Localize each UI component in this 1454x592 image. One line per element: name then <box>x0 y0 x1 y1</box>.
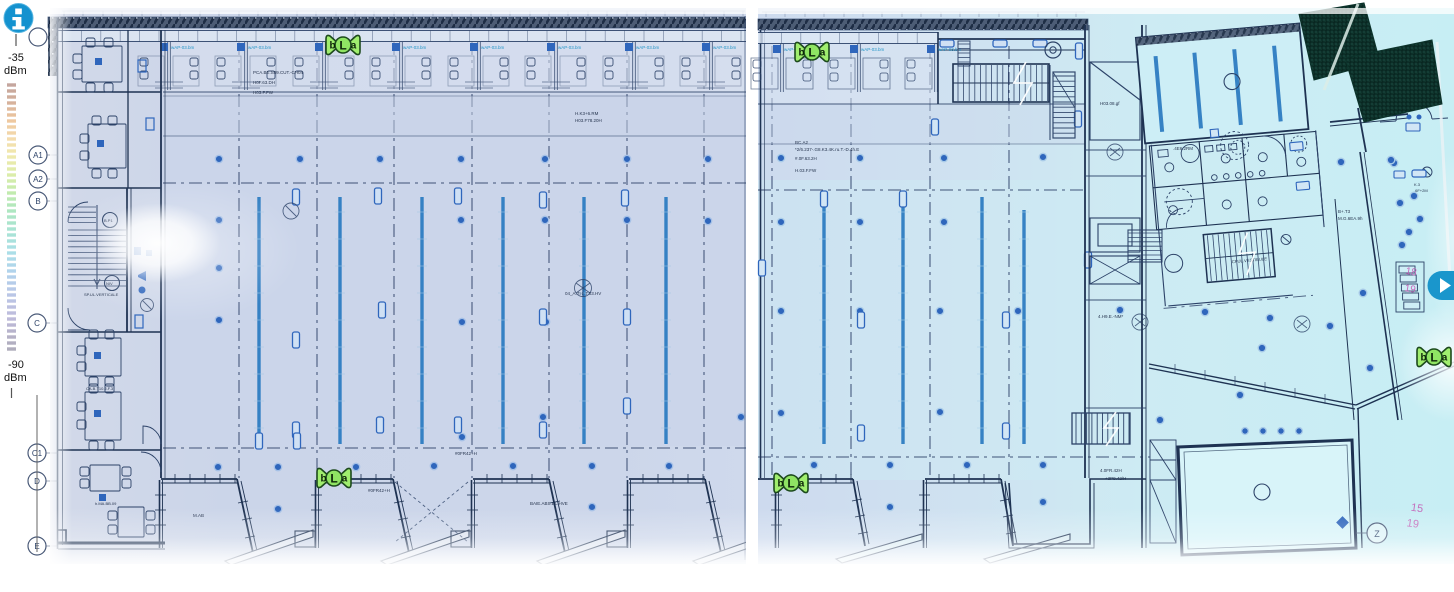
svg-text:C: C <box>34 319 40 328</box>
svg-text:wAP-03.bm: wAP-03.bm <box>248 45 272 50</box>
svg-text:H0F.63.DH: H0F.63.DH <box>253 80 275 85</box>
svg-text:M.G.6EA.9h: M.G.6EA.9h <box>1338 216 1363 221</box>
svg-text:a: a <box>820 48 826 59</box>
svg-text:wAP-03.bm: wAP-03.bm <box>481 45 505 50</box>
svg-text:B: B <box>35 197 40 206</box>
svg-text:wAP-03.bm: wAP-03.bm <box>713 45 737 50</box>
svg-text:B+.T3: B+.T3 <box>1338 209 1351 214</box>
svg-text:wAP-03.bm: wAP-03.bm <box>558 45 582 50</box>
svg-text:a: a <box>1442 353 1448 364</box>
svg-text:L: L <box>1430 351 1437 365</box>
svg-text:BC.A2: BC.A2 <box>795 140 809 145</box>
svg-text:wAP-03.bm: wAP-03.bm <box>636 45 660 50</box>
svg-text:#.0F.63.2H: #.0F.63.2H <box>795 156 817 161</box>
svg-text:a: a <box>799 479 805 490</box>
svg-text:wAP-03.bm: wAP-03.bm <box>861 47 885 52</box>
svg-text:wAP-03.bm: wAP-03.bm <box>171 45 195 50</box>
svg-text:b: b <box>777 479 783 490</box>
svg-text:dBm: dBm <box>4 65 27 77</box>
svg-text:H03.08.gf: H03.08.gf <box>1100 101 1120 106</box>
svg-text:A2: A2 <box>33 175 43 184</box>
svg-text:H03.F.FW: H03.F.FW <box>253 90 274 95</box>
svg-text:L: L <box>787 477 794 491</box>
svg-text:K.3: K.3 <box>1414 182 1421 187</box>
svg-text:L: L <box>808 46 815 60</box>
svg-text:wAP-03.bm: wAP-03.bm <box>403 45 427 50</box>
svg-text:*2/6.237-.G8.K3.4K.ru.T.-D.4h.: *2/6.237-.G8.K3.4K.ru.T.-D.4h.E <box>795 147 859 152</box>
svg-text:PCA.BE.S09.CUT.-CH04: PCA.BE.S09.CUT.-CH04 <box>253 70 304 75</box>
svg-text:b: b <box>798 48 804 59</box>
svg-text:4.H9.E.-NM*: 4.H9.E.-NM* <box>1098 314 1124 319</box>
svg-text:b: b <box>329 41 335 52</box>
svg-text:b: b <box>1420 353 1426 364</box>
svg-text:.4E6.2RM: .4E6.2RM <box>1173 146 1193 151</box>
svg-text:-35: -35 <box>8 52 24 64</box>
svg-text:H03.F78.20H: H03.F78.20H <box>575 118 602 123</box>
svg-text:a: a <box>351 41 357 52</box>
svg-text:b: b <box>320 474 326 485</box>
svg-text:dBm: dBm <box>4 372 27 384</box>
svg-text:-90: -90 <box>8 359 24 371</box>
svg-text:H.K3+6.RM: H.K3+6.RM <box>575 111 599 116</box>
svg-text:a: a <box>342 474 348 485</box>
svg-text:L: L <box>330 472 337 486</box>
svg-text:L: L <box>339 39 346 53</box>
svg-text:A1: A1 <box>33 151 43 160</box>
svg-text:H.03.F.FW: H.03.F.FW <box>795 168 817 173</box>
